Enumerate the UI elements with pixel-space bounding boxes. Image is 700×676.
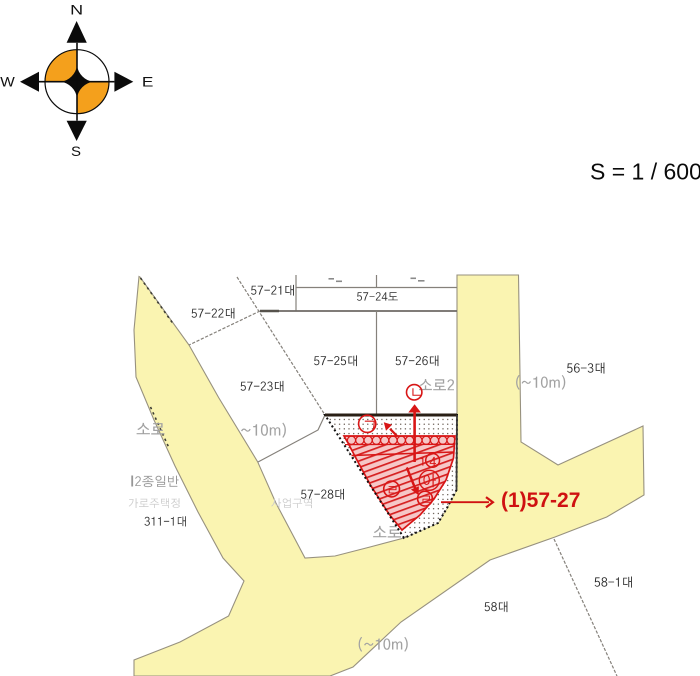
svg-text:W: W	[0, 74, 15, 90]
svg-text:S = 1 / 600: S = 1 / 600	[590, 159, 700, 185]
svg-text:(1)57-27: (1)57-27	[501, 489, 580, 512]
svg-text:S: S	[71, 143, 81, 159]
svg-text:N: N	[70, 2, 83, 18]
svg-text:E: E	[142, 74, 154, 90]
